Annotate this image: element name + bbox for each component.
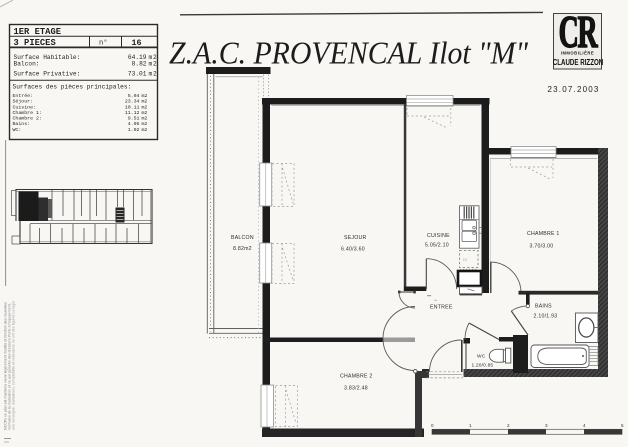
svg-text:Surface Privative:: Surface Privative:	[14, 70, 81, 77]
svg-text:une renseigné, réalisations, c: une renseigné, réalisations, comptabilit…	[12, 300, 16, 430]
svg-text:WC: WC	[477, 354, 486, 360]
svg-text:1.02: 1.02	[128, 127, 140, 133]
svg-text:Z.A.C. PROVENCAL Ilot "M": Z.A.C. PROVENCAL Ilot "M"	[169, 36, 529, 71]
svg-text:6.40/3.60: 6.40/3.60	[341, 247, 365, 253]
svg-text:2: 2	[507, 423, 510, 428]
svg-text:m2: m2	[142, 110, 148, 116]
svg-text:9.51: 9.51	[128, 116, 140, 122]
svg-text:8.82m2: 8.82m2	[233, 246, 252, 252]
svg-text:11.12: 11.12	[125, 110, 140, 116]
svg-text:BAINS: BAINS	[535, 304, 552, 310]
svg-text:IMMOBILIÈRE: IMMOBILIÈRE	[561, 51, 594, 56]
svg-text:16: 16	[132, 38, 142, 48]
svg-text:Cuisine:: Cuisine:	[13, 104, 36, 110]
svg-text:Chambre 1:: Chambre 1:	[13, 110, 42, 116]
svg-text:4: 4	[583, 423, 586, 428]
svg-text:m2: m2	[142, 104, 148, 110]
svg-text:BALCON: BALCON	[231, 235, 254, 241]
svg-text:1ER ETAGE: 1ER ETAGE	[14, 27, 62, 37]
svg-text:ENTREE: ENTREE	[430, 305, 453, 311]
svg-text:m2: m2	[142, 93, 148, 99]
svg-text:Balcon:: Balcon:	[14, 61, 40, 68]
svg-text:m2: m2	[142, 127, 148, 133]
svg-text:1.20/0.85: 1.20/0.85	[472, 363, 494, 369]
svg-text:23.34: 23.34	[125, 99, 140, 105]
svg-text:0: 0	[431, 423, 434, 428]
svg-text:CHAMBRE 1: CHAMBRE 1	[527, 231, 560, 237]
svg-text:CHAMBRE 2: CHAMBRE 2	[340, 374, 373, 380]
svg-text:Bains:: Bains:	[13, 121, 31, 127]
svg-text:WC:: WC:	[13, 127, 22, 133]
svg-text:3.70/3.00: 3.70/3.00	[530, 244, 554, 250]
svg-text:3: 3	[545, 423, 548, 428]
svg-text:23.07.2003: 23.07.2003	[548, 85, 600, 94]
svg-text:m2: m2	[142, 116, 148, 122]
svg-text:8.82: 8.82	[132, 61, 147, 68]
svg-text:73.01: 73.01	[128, 70, 147, 77]
svg-text:m2: m2	[142, 99, 148, 105]
svg-text:1: 1	[469, 423, 472, 428]
svg-text:Chambre 2:: Chambre 2:	[13, 116, 42, 122]
svg-text:5: 5	[621, 423, 624, 428]
svg-text:3.83/2.48: 3.83/2.48	[344, 386, 368, 392]
svg-text:2.10/1.93: 2.10/1.93	[534, 314, 558, 320]
svg-text:4.05: 4.05	[128, 121, 140, 127]
svg-text:Surfaces des pièces principale: Surfaces des pièces principales:	[13, 84, 132, 91]
svg-text:m2: m2	[149, 61, 158, 68]
svg-text:10.11: 10.11	[125, 104, 140, 110]
svg-text:5.04: 5.04	[128, 93, 140, 99]
svg-text:Entrée:: Entrée:	[13, 93, 34, 99]
svg-text:m2: m2	[142, 121, 148, 127]
svg-text:n°: n°	[99, 38, 107, 47]
svg-text:3 PIECES: 3 PIECES	[14, 38, 56, 48]
svg-text:LV: LV	[463, 258, 468, 262]
svg-text:5.05/2.10: 5.05/2.10	[425, 243, 449, 249]
svg-text:CUISINE: CUISINE	[427, 233, 450, 239]
svg-text:Séjour:: Séjour:	[13, 99, 34, 105]
svg-text:SEJOUR: SEJOUR	[344, 235, 367, 241]
svg-text:m2: m2	[149, 70, 158, 77]
svg-text:CLAUDE RIZZON: CLAUDE RIZZON	[553, 57, 604, 67]
